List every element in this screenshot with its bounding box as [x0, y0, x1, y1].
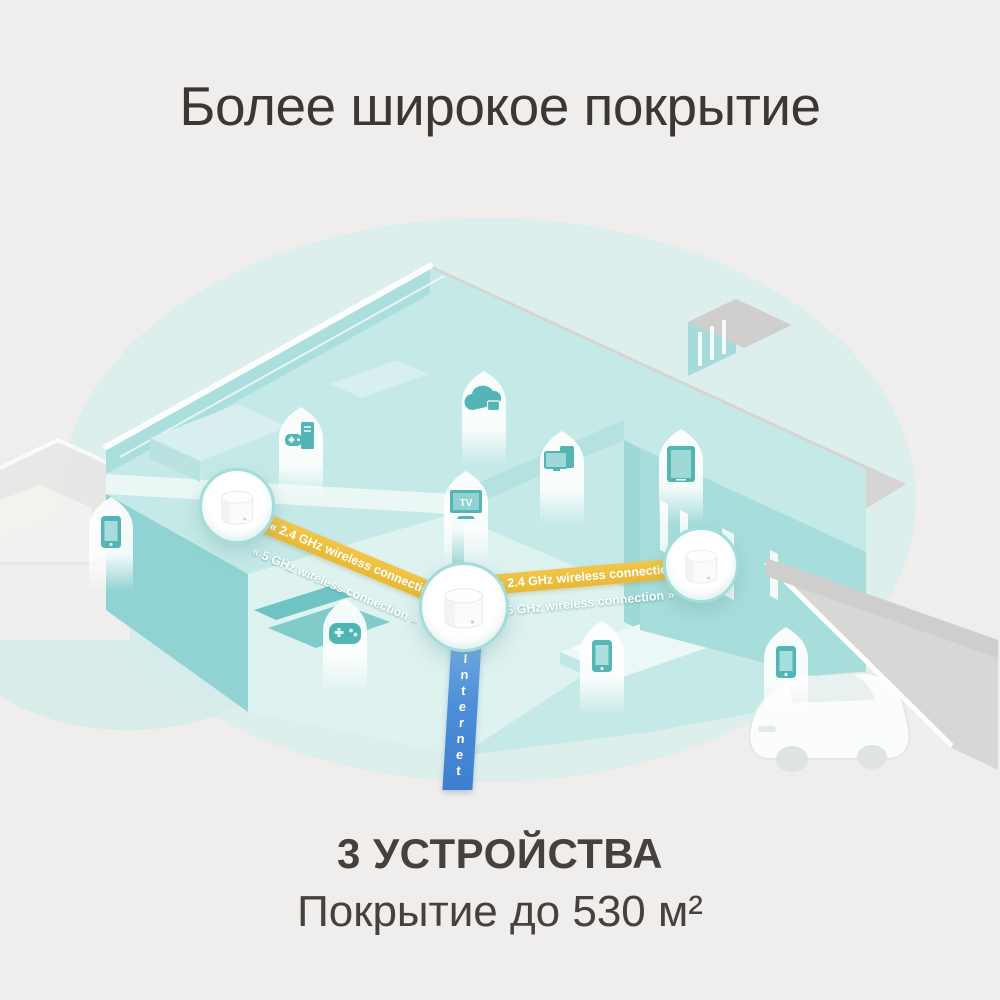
mesh-router-icon: [210, 479, 265, 534]
page-title: Более широкое покрытие: [0, 74, 1000, 138]
device-pin-smartphone: [84, 496, 138, 591]
svg-text:TV: TV: [460, 498, 473, 509]
device-pin-gamepad: [318, 598, 372, 693]
mesh-router-right: [663, 527, 739, 603]
coverage-text: Покрытие до 530 м²: [0, 887, 1000, 937]
mesh-router-icon: [431, 574, 497, 640]
device-pin-smartphone: [759, 626, 813, 721]
smartphone-icon: [776, 646, 796, 678]
device-pin-gaming-pc: [274, 406, 328, 501]
device-pin-tablet: [654, 428, 708, 523]
device-pin-tv: TV: [439, 470, 493, 565]
devices-count: 3 УСТРОЙСТВА: [0, 830, 1000, 878]
smartphone-icon: [592, 640, 612, 672]
smartphone-icon: [101, 516, 121, 548]
mesh-router-icon: [674, 538, 729, 593]
device-pin-monitor-tablet: [535, 430, 589, 525]
footer: 3 УСТРОЙСТВА Покрытие до 530 м²: [0, 830, 1000, 937]
internet-label: Internet: [451, 651, 474, 779]
mesh-router-center: [419, 562, 509, 652]
gamepad-icon: [329, 623, 361, 644]
mesh-router-left: [199, 468, 275, 544]
house-illustration: [0, 170, 1000, 830]
product-infographic: Более широкое покрытие: [0, 0, 1000, 1000]
device-pin-cloud-lock: [457, 370, 511, 465]
device-pin-smartphone: [575, 620, 629, 715]
tablet-icon: [667, 446, 695, 482]
